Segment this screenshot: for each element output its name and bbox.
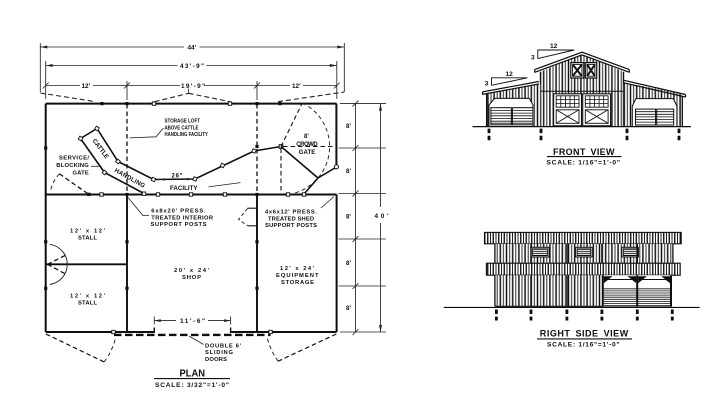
svg-text:RIGHT SIDE VIEW: RIGHT SIDE VIEW [540, 329, 629, 339]
svg-text:8': 8' [346, 260, 351, 267]
svg-text:SERVICE/: SERVICE/ [59, 156, 89, 162]
svg-text:12': 12' [82, 83, 91, 90]
svg-text:SCALE: 3/32"=1'-0": SCALE: 3/32"=1'-0" [155, 382, 229, 389]
svg-text:12: 12 [506, 71, 514, 78]
svg-text:EQUIPMENT: EQUIPMENT [276, 273, 319, 279]
svg-text:44': 44' [188, 45, 197, 52]
svg-text:GATE: GATE [73, 171, 89, 177]
svg-text:STORAGE: STORAGE [281, 280, 314, 286]
svg-text:CROWD: CROWD [296, 142, 318, 148]
svg-text:40': 40' [375, 213, 389, 220]
svg-text:FRONT VIEW: FRONT VIEW [553, 147, 615, 157]
svg-text:SLIDING: SLIDING [205, 350, 233, 356]
svg-text:HANDLING FACILITY: HANDLING FACILITY [165, 132, 208, 138]
svg-text:TREATED INTERIOR: TREATED INTERIOR [151, 215, 214, 221]
svg-text:12' x 12': 12' x 12' [70, 294, 106, 300]
svg-text:PLAN: PLAN [180, 368, 206, 379]
svg-text:12: 12 [550, 43, 558, 50]
svg-text:12': 12' [292, 83, 301, 90]
svg-text:GATE: GATE [299, 150, 316, 156]
svg-text:STALL: STALL [78, 301, 97, 307]
svg-text:8': 8' [304, 134, 309, 140]
svg-text:12' x 12': 12' x 12' [70, 229, 106, 235]
svg-text:SUPPORT POSTS: SUPPORT POSTS [265, 223, 317, 229]
svg-text:8': 8' [346, 123, 351, 130]
svg-text:26": 26" [172, 174, 183, 180]
svg-text:20' x 24': 20' x 24' [174, 268, 210, 274]
svg-text:STORAGE LOFT: STORAGE LOFT [165, 119, 201, 125]
svg-text:STALL: STALL [78, 236, 97, 242]
svg-text:FACILITY: FACILITY [170, 185, 198, 192]
svg-text:ABOVE CATTLE: ABOVE CATTLE [165, 125, 199, 131]
svg-text:6x8x20' PRESS.: 6x8x20' PRESS. [151, 209, 206, 215]
svg-text:12' x 24': 12' x 24' [280, 266, 315, 272]
svg-text:8': 8' [346, 168, 351, 175]
svg-text:BLOCKING: BLOCKING [56, 163, 89, 169]
svg-text:SCALE: 1/16"=1'-0": SCALE: 1/16"=1'-0" [547, 341, 620, 348]
svg-text:DOORS: DOORS [205, 357, 227, 363]
svg-text:SUPPORT POSTS: SUPPORT POSTS [151, 222, 207, 228]
svg-text:8': 8' [346, 305, 351, 312]
svg-text:SCALE: 1/16"=1'-0": SCALE: 1/16"=1'-0" [547, 160, 621, 167]
svg-text:DOUBLE 6': DOUBLE 6' [205, 344, 242, 350]
svg-text:SHOP: SHOP [182, 275, 201, 281]
svg-text:3: 3 [531, 55, 535, 62]
svg-text:4x6x12' PRESS.: 4x6x12' PRESS. [265, 210, 317, 216]
svg-text:8': 8' [346, 214, 351, 221]
svg-text:3: 3 [485, 81, 489, 88]
svg-text:TREATED SHED: TREATED SHED [268, 216, 314, 222]
